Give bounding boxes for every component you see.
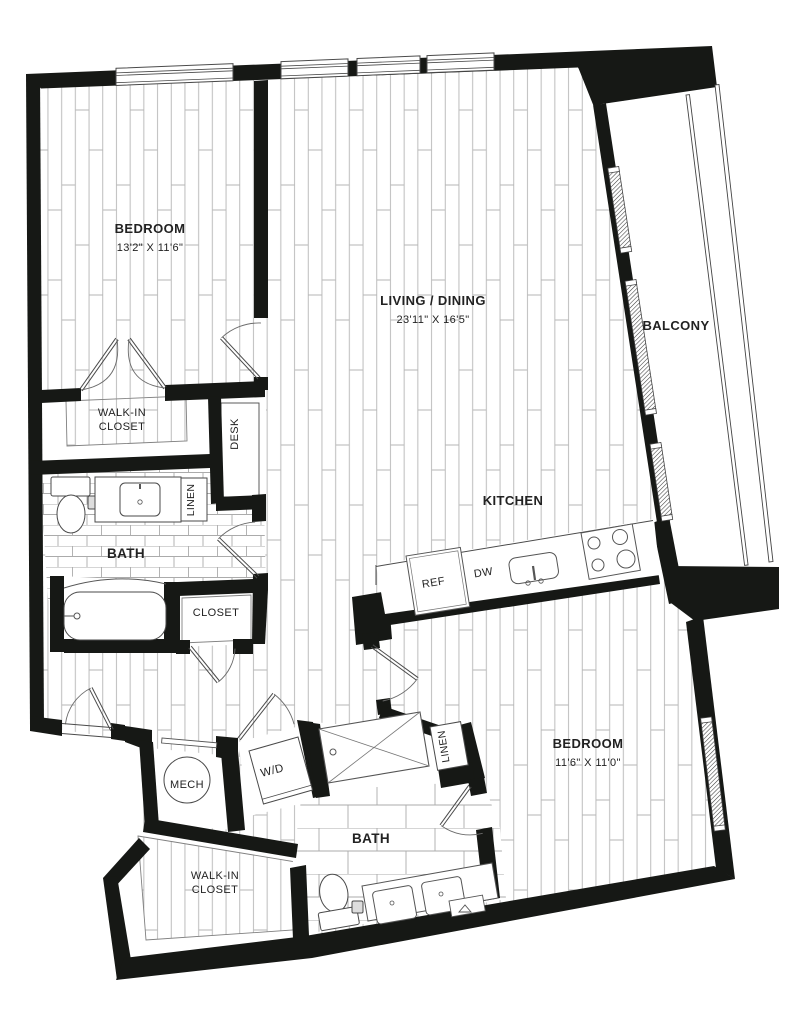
svg-text:KITCHEN: KITCHEN [483,493,544,508]
svg-text:CLOSET: CLOSET [99,421,145,433]
svg-text:WALK-IN: WALK-IN [191,870,239,882]
svg-text:BEDROOM: BEDROOM [115,221,186,236]
svg-text:BALCONY: BALCONY [642,318,709,333]
svg-text:LINEN: LINEN [185,484,197,516]
svg-text:DESK: DESK [229,418,241,450]
svg-text:BATH: BATH [107,546,145,561]
svg-text:CLOSET: CLOSET [193,607,239,619]
svg-text:BATH: BATH [352,831,390,846]
svg-text:BEDROOM: BEDROOM [553,736,624,751]
svg-text:13'2" X 11'6": 13'2" X 11'6" [117,242,184,254]
svg-text:23'11" X 16'5": 23'11" X 16'5" [396,314,469,326]
svg-text:WALK-IN: WALK-IN [98,407,146,419]
svg-text:CLOSET: CLOSET [192,884,238,896]
svg-text:LIVING / DINING: LIVING / DINING [380,293,486,308]
svg-text:MECH: MECH [170,779,204,791]
svg-text:11'6" X 11'0": 11'6" X 11'0" [555,757,621,769]
